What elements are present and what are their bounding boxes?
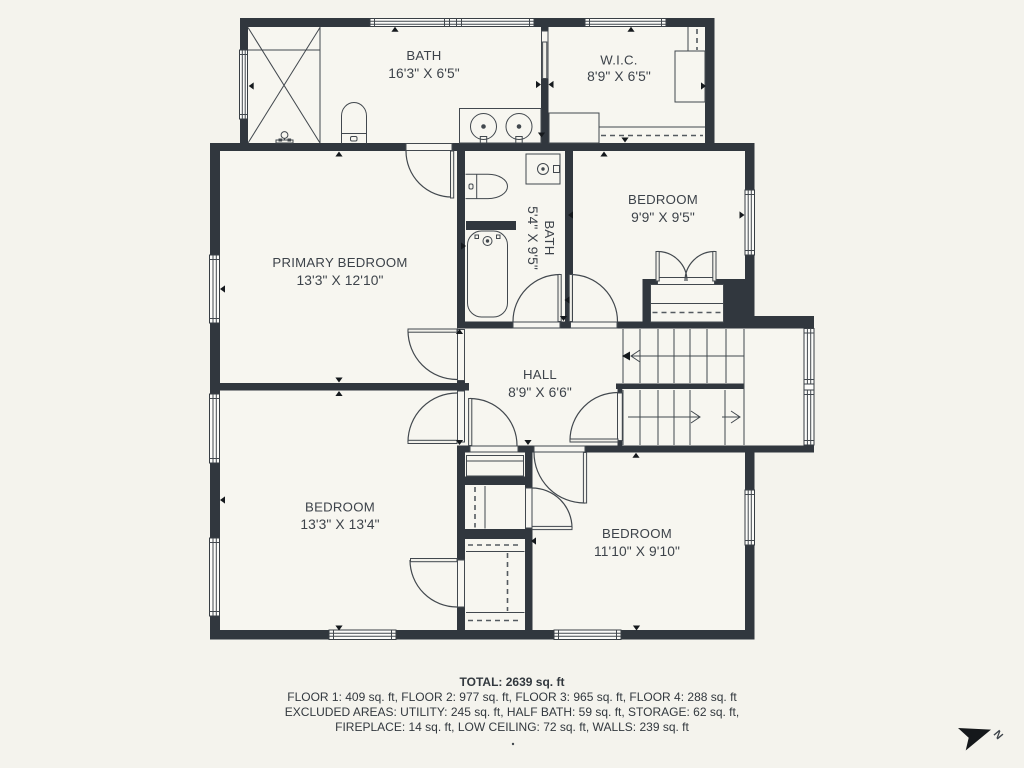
svg-text:W.I.C.: W.I.C.	[600, 53, 637, 68]
svg-text:HALL: HALL	[523, 367, 557, 382]
svg-text:BATH: BATH	[406, 48, 441, 63]
svg-text:8'9" X 6'6": 8'9" X 6'6"	[508, 385, 572, 400]
svg-text:5'4" X 9'5": 5'4" X 9'5"	[525, 206, 540, 270]
svg-text:16'3" X 6'5": 16'3" X 6'5"	[388, 66, 460, 81]
svg-text:TOTAL: 2639 sq. ft: TOTAL: 2639 sq. ft	[460, 675, 565, 689]
svg-text:13'3" X 13'4": 13'3" X 13'4"	[300, 517, 379, 532]
svg-text:FIREPLACE: 14 sq. ft, LOW CEIL: FIREPLACE: 14 sq. ft, LOW CEILING: 72 sq…	[335, 720, 689, 734]
svg-text:BEDROOM: BEDROOM	[305, 500, 375, 515]
svg-text:BATH: BATH	[542, 220, 557, 255]
svg-text:PRIMARY BEDROOM: PRIMARY BEDROOM	[272, 255, 407, 270]
svg-text:FLOOR 1: 409 sq. ft, FLOOR 2:: FLOOR 1: 409 sq. ft, FLOOR 2: 977 sq. ft…	[287, 690, 737, 704]
svg-text:EXCLUDED AREAS: UTILITY: 245 s: EXCLUDED AREAS: UTILITY: 245 sq. ft, HAL…	[285, 705, 739, 719]
svg-text:11'10" X 9'10": 11'10" X 9'10"	[594, 544, 680, 559]
svg-text:BEDROOM: BEDROOM	[602, 526, 672, 541]
svg-text:9'9" X 9'5": 9'9" X 9'5"	[631, 210, 695, 225]
svg-text:13'3" X 12'10": 13'3" X 12'10"	[296, 273, 383, 288]
svg-text:BEDROOM: BEDROOM	[628, 192, 698, 207]
svg-text:8'9" X 6'5": 8'9" X 6'5"	[587, 69, 651, 84]
